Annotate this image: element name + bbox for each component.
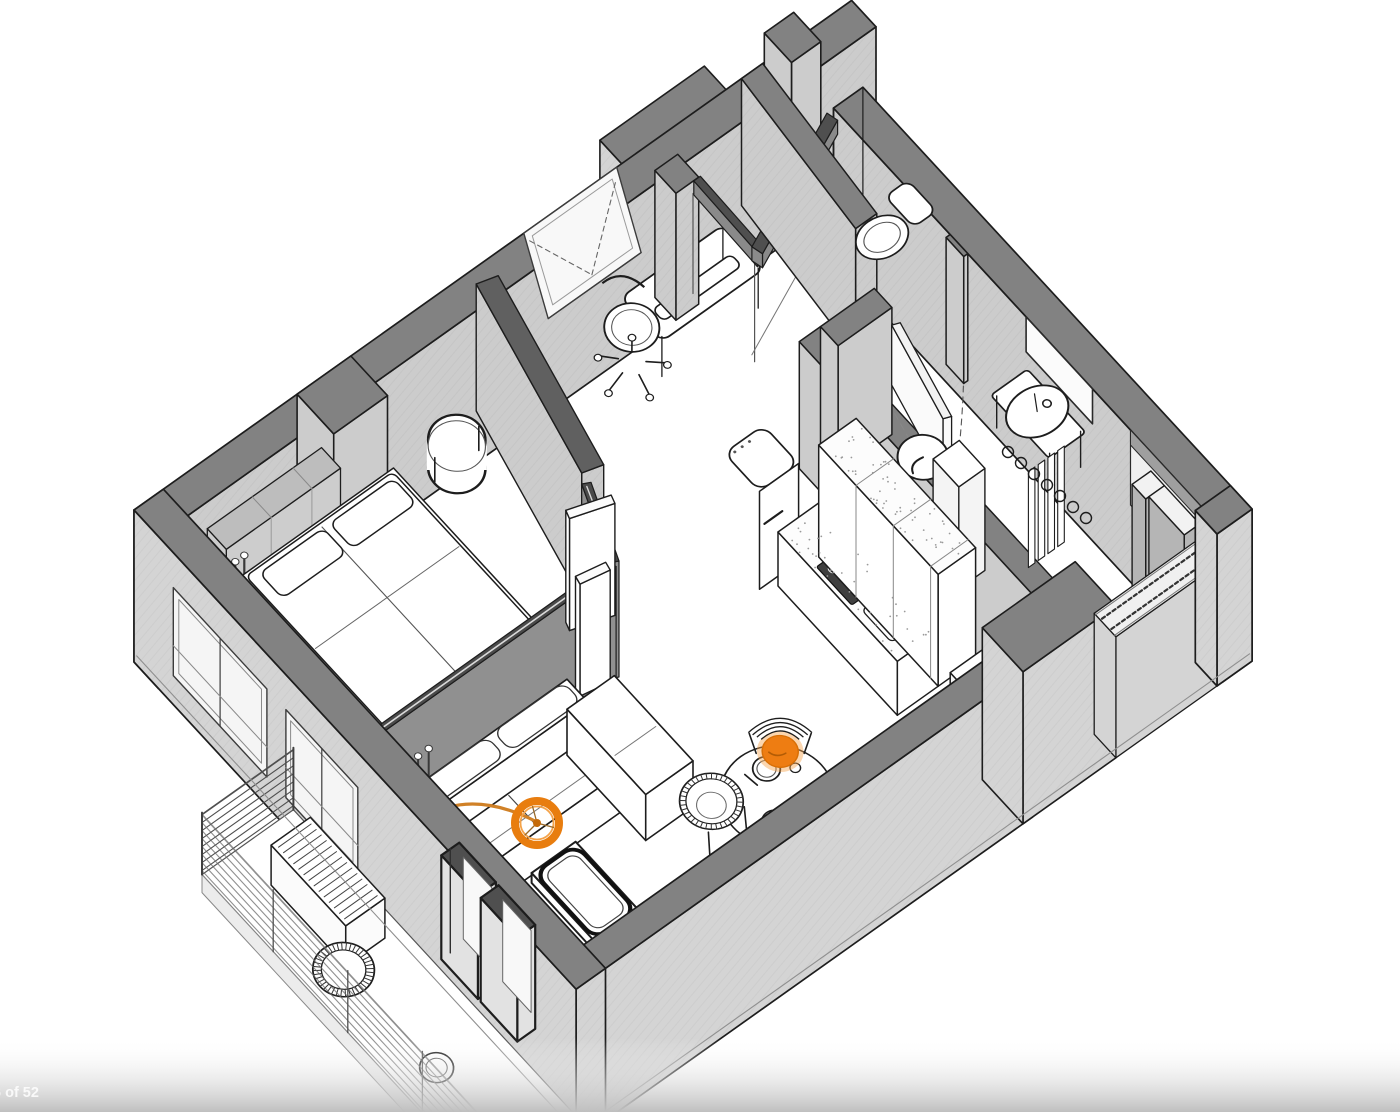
svg-text:6 of 52: 6 of 52 — [0, 1085, 39, 1101]
